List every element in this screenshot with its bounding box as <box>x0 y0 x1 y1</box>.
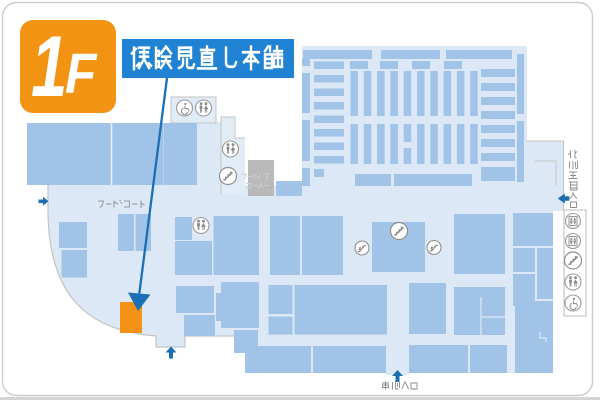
svg-text:1: 1 <box>31 19 67 115</box>
svg-text:F: F <box>65 43 98 106</box>
